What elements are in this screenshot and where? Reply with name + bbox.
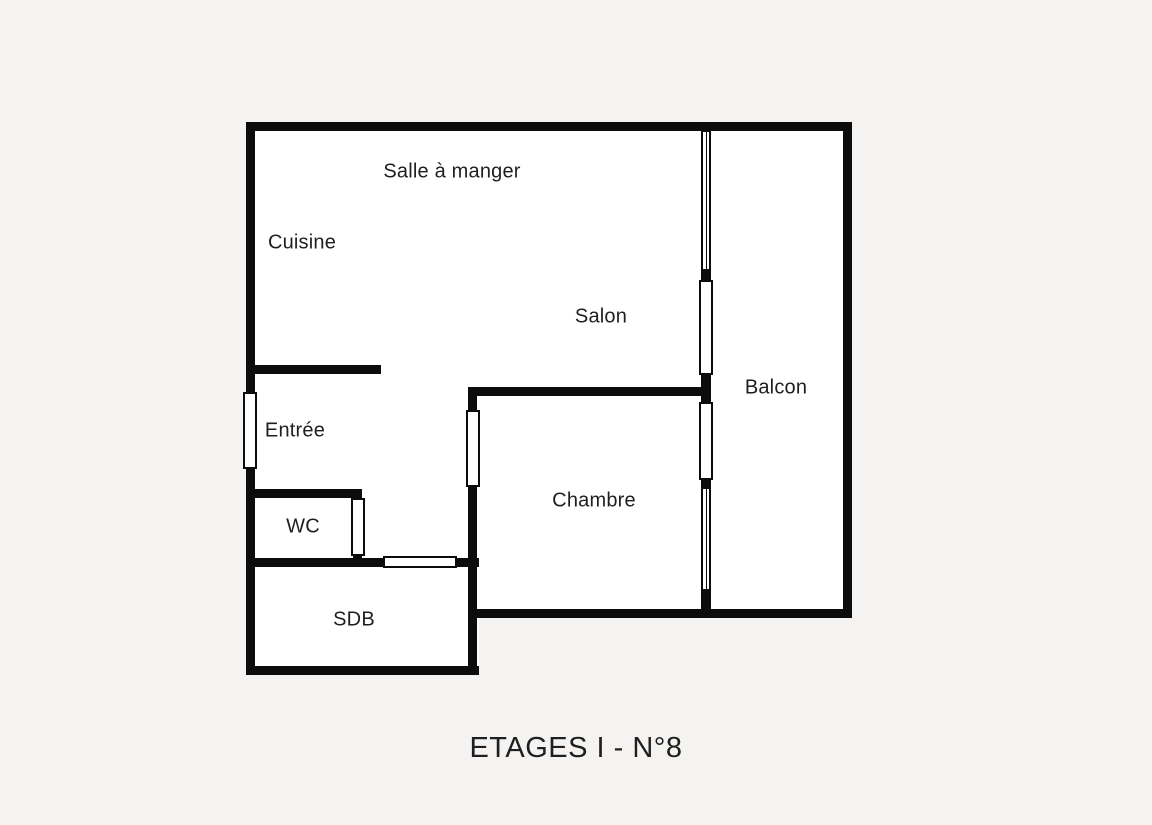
label-balcon: Balcon: [745, 377, 807, 400]
label-sdb: SDB: [333, 609, 375, 632]
balcony-window-lower: [702, 488, 710, 590]
wall-top-exterior: [246, 122, 852, 131]
wall-right-exterior: [843, 122, 852, 617]
label-chambre: Chambre: [552, 490, 636, 513]
entree-entry-door: [243, 392, 257, 469]
wall-chambre-top: [468, 387, 711, 396]
sdb-door: [383, 556, 457, 568]
floor-plan-page: Salle à mangerCuisineSalonBalconEntréeWC…: [0, 0, 1152, 825]
label-cuisine: Cuisine: [268, 232, 336, 255]
wall-bottom-sdb: [246, 666, 479, 675]
wall-wc-top: [246, 489, 362, 498]
wall-entree-stub: [246, 365, 381, 374]
balcony-window-upper: [702, 131, 710, 270]
floor-plan: Salle à mangerCuisineSalonBalconEntréeWC…: [0, 0, 1152, 825]
balcony-window-lower-pane-line: [706, 489, 707, 589]
wc-door: [351, 498, 365, 556]
label-wc: WC: [286, 516, 320, 539]
balcony-window-upper-pane-line: [706, 132, 707, 269]
label-salle-a-manger: Salle à manger: [383, 161, 520, 184]
balcony-door-chambre: [699, 402, 713, 480]
label-entree: Entrée: [265, 420, 325, 443]
wall-bottom-main: [468, 609, 852, 618]
label-salon: Salon: [575, 306, 627, 329]
chambre-door: [466, 410, 480, 487]
plan-title: ETAGES I - N°8: [0, 732, 1152, 765]
balcony-door-salon: [699, 280, 713, 375]
